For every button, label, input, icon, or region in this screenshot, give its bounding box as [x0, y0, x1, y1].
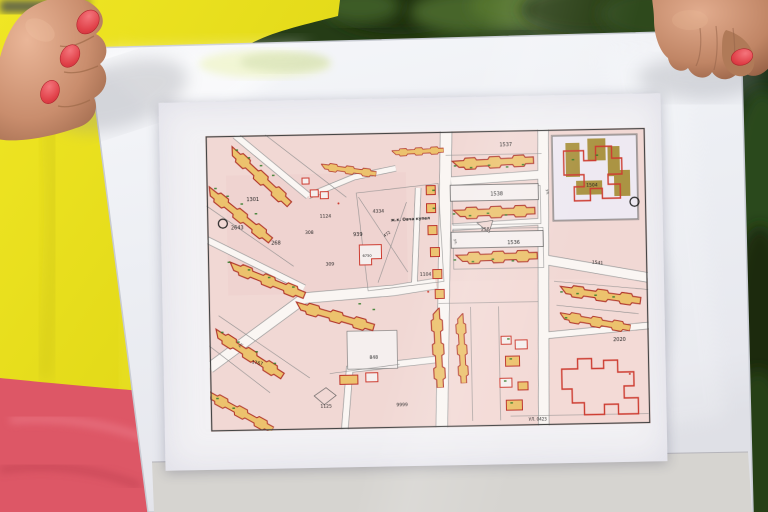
hands-layer: [0, 0, 768, 512]
left-hand: [0, 0, 106, 140]
right-hand: [652, 0, 768, 79]
